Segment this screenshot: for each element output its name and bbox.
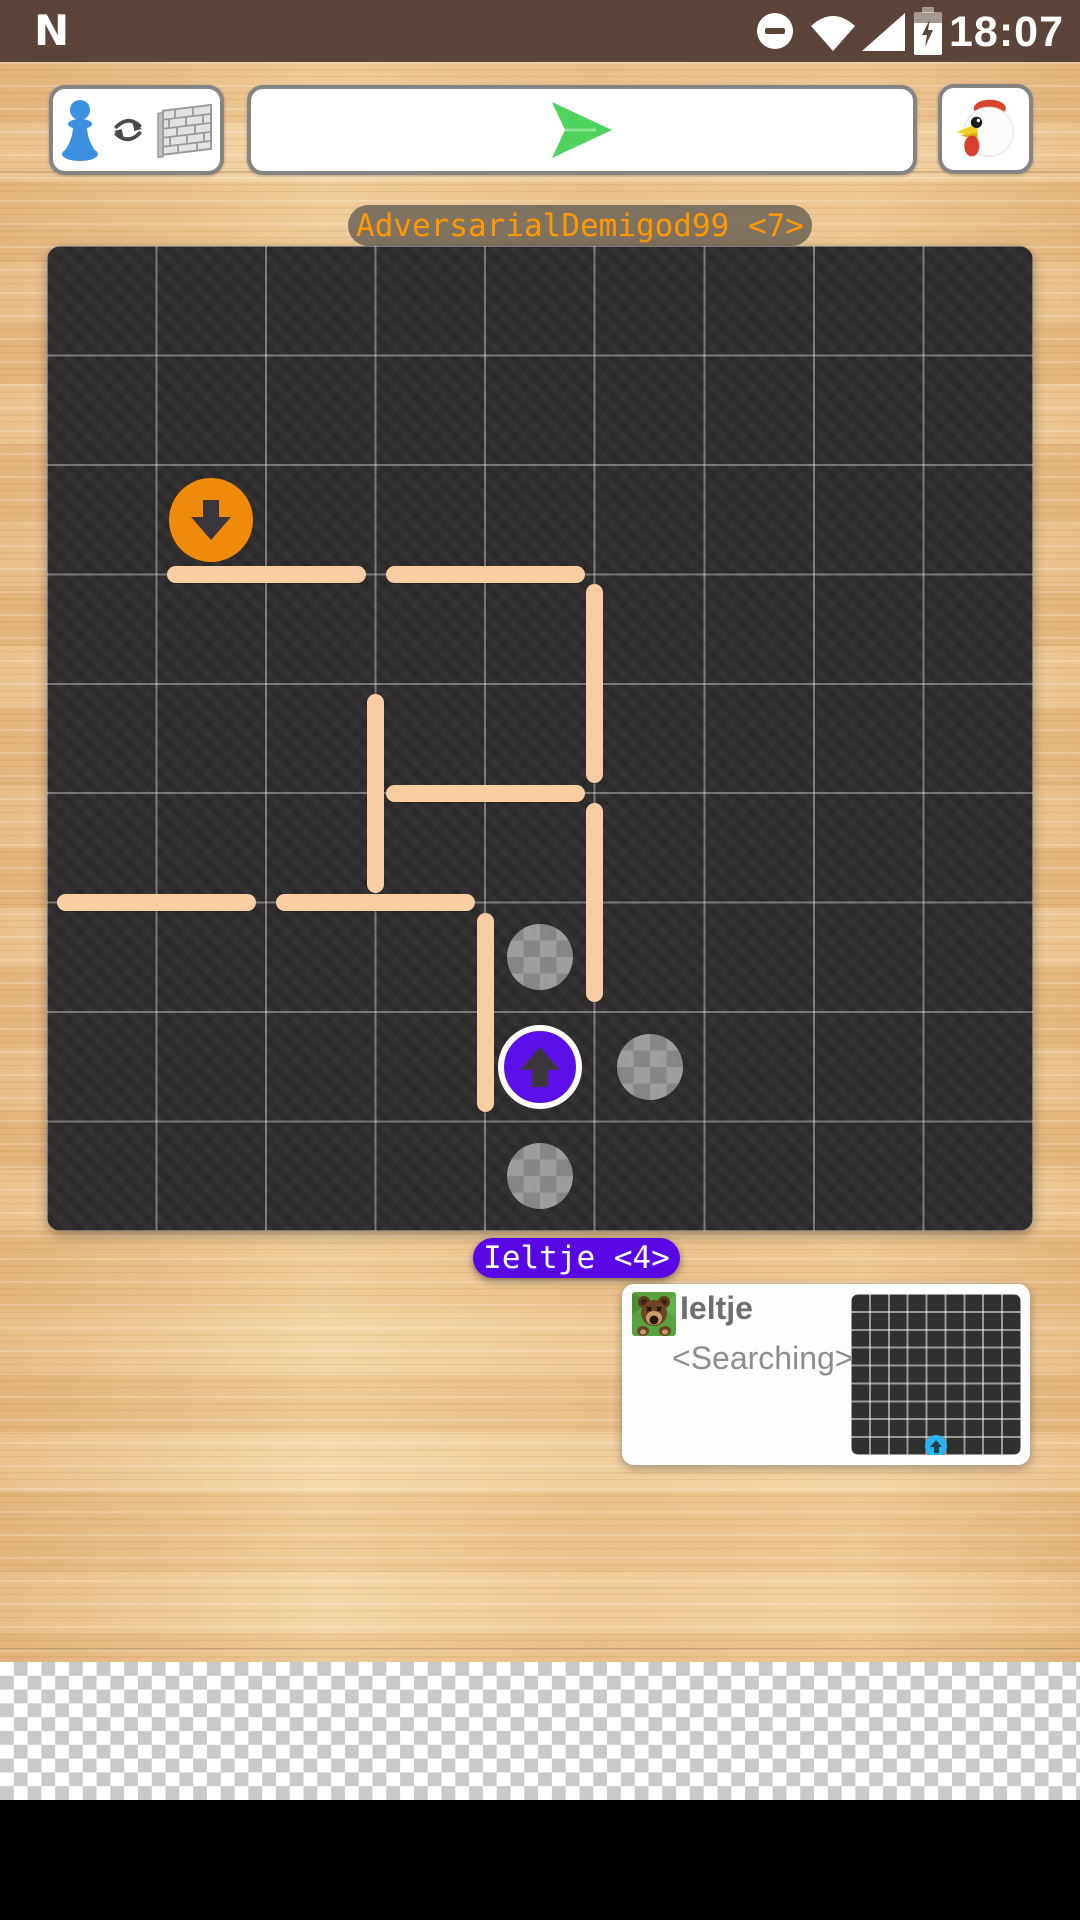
do-not-disturb-icon — [757, 13, 793, 49]
transparency-checker — [0, 1662, 1080, 1800]
opponent-name: Ieltje — [680, 1290, 753, 1327]
wall-h-0-5 — [57, 894, 256, 911]
wall-icon — [153, 98, 217, 162]
cell-signal-icon — [860, 12, 906, 52]
wall-h-3-2 — [386, 566, 585, 583]
move-hint-5-7[interactable] — [617, 1034, 683, 1100]
pawn-icon — [57, 99, 103, 161]
send-dart-icon — [552, 102, 612, 158]
mode-toggle-button[interactable] — [49, 85, 224, 175]
battery-charging-icon — [914, 7, 942, 55]
mini-board-pawn — [925, 1435, 947, 1455]
wood-seam — [0, 1648, 1080, 1652]
opponent-pawn — [169, 478, 253, 562]
opponent-card: Ieltje <Searching> — [622, 1284, 1030, 1465]
chicken-icon — [952, 94, 1020, 164]
wall-v-4-5 — [586, 803, 603, 1002]
arrow-up-icon — [520, 1047, 560, 1087]
opponent-banner: AdversarialDemigod99 <7> — [348, 205, 812, 246]
wall-v-4-3 — [586, 584, 603, 783]
game-board[interactable] — [47, 246, 1033, 1231]
arrow-down-icon — [191, 500, 231, 540]
teddy-bear-avatar — [632, 1292, 676, 1336]
chicken-button[interactable] — [938, 84, 1033, 174]
wall-v-2-4 — [367, 694, 384, 893]
clock: 18:07 — [949, 0, 1064, 62]
mini-board — [851, 1294, 1021, 1455]
move-hint-4-6[interactable] — [507, 924, 573, 990]
player-pawn[interactable] — [498, 1025, 582, 1109]
wifi-icon — [810, 12, 856, 52]
opponent-status: <Searching> — [672, 1340, 853, 1377]
wall-h-3-4 — [386, 785, 585, 802]
move-hint-4-8[interactable] — [507, 1143, 573, 1209]
notification-n-icon: N — [34, 0, 69, 62]
wall-h-2-5 — [276, 894, 475, 911]
wall-v-3-6 — [477, 913, 494, 1112]
player-banner: Ieltje <4> — [473, 1238, 680, 1278]
screen: N 18:07 — [0, 0, 1080, 1920]
navigation-bar — [0, 1800, 1080, 1920]
status-bar: N 18:07 — [0, 0, 1080, 62]
send-move-button[interactable] — [247, 85, 917, 175]
swap-icon — [109, 114, 147, 146]
wall-h-1-2 — [167, 566, 366, 583]
